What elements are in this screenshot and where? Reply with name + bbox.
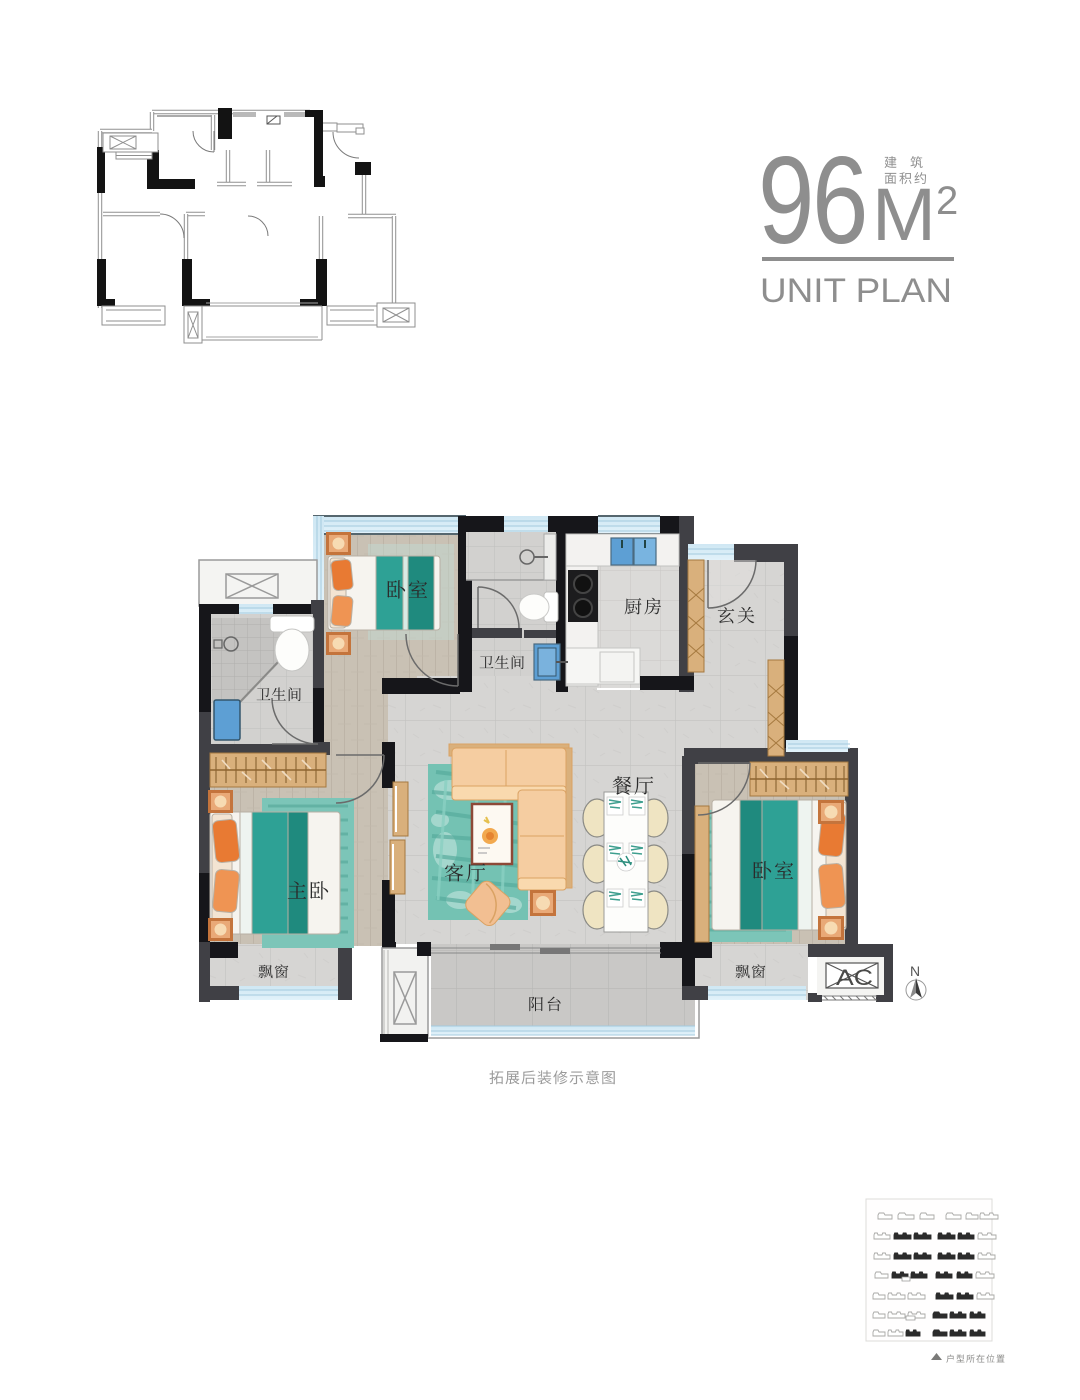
svg-text:2: 2 bbox=[936, 179, 958, 223]
svg-text:N: N bbox=[910, 963, 920, 979]
svg-text:M: M bbox=[872, 173, 936, 256]
svg-text:96: 96 bbox=[758, 132, 866, 270]
svg-text:UNIT PLAN: UNIT PLAN bbox=[760, 272, 952, 310]
svg-text:AC: AC bbox=[836, 965, 873, 990]
